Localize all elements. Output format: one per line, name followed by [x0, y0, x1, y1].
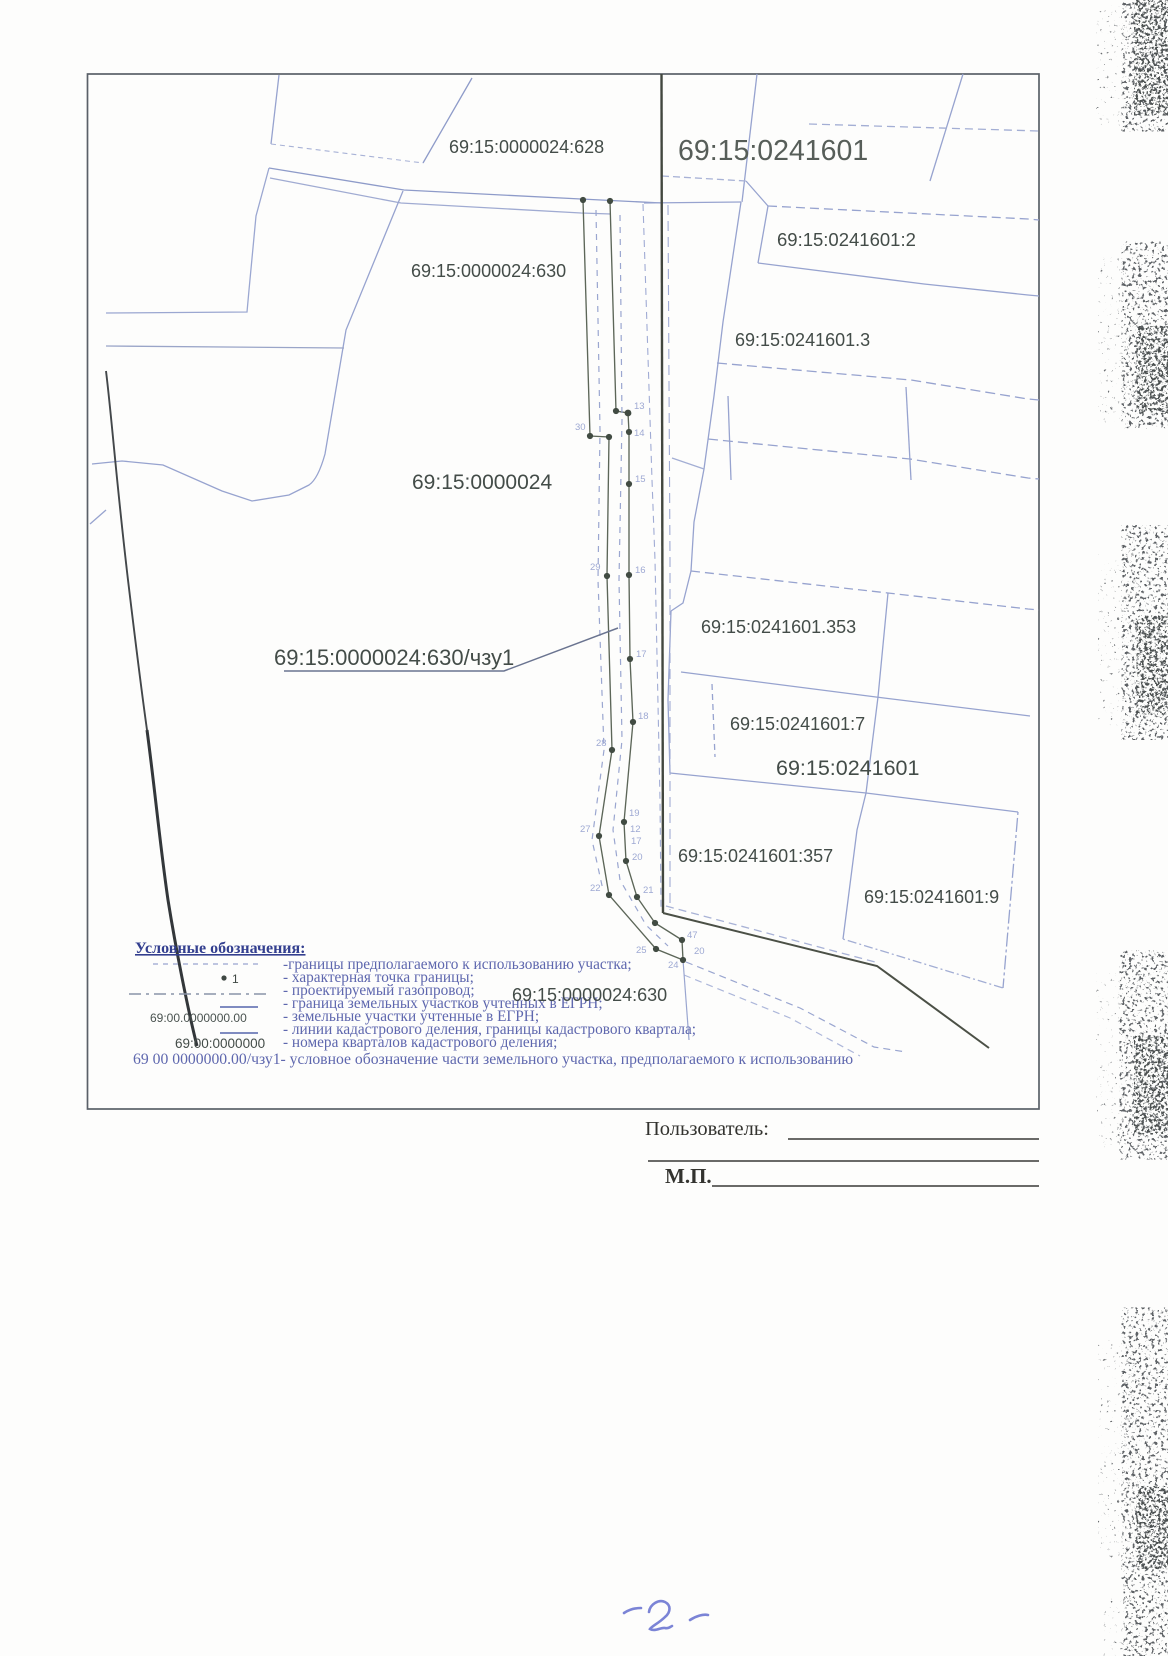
svg-text:20: 20: [632, 852, 643, 863]
svg-text:69:15:0241601:2: 69:15:0241601:2: [777, 229, 916, 250]
svg-text:69:00:0000000: 69:00:0000000: [175, 1036, 265, 1051]
svg-text:24: 24: [668, 960, 679, 971]
svg-text:17: 17: [636, 649, 647, 660]
svg-text:69:15:0000024:630: 69:15:0000024:630: [411, 261, 566, 281]
svg-text:69:15:0000024: 69:15:0000024: [412, 471, 552, 494]
svg-text:69:15:0241601:7: 69:15:0241601:7: [730, 714, 865, 734]
svg-text:- номера кварталов кадастровог: - номера кварталов кадастрового деления;: [283, 1034, 557, 1051]
svg-text:19: 19: [629, 808, 640, 819]
svg-text:Условные обозначения:: Условные обозначения:: [135, 940, 306, 957]
svg-text:29: 29: [590, 562, 601, 573]
svg-text:25: 25: [636, 945, 647, 956]
svg-text:47: 47: [687, 930, 698, 941]
svg-text:69:15:0241601: 69:15:0241601: [776, 756, 919, 780]
svg-text:20: 20: [694, 946, 705, 957]
svg-text:69:15:0241601:357: 69:15:0241601:357: [678, 846, 833, 866]
svg-text:22: 22: [590, 883, 601, 894]
svg-text:69:00.0000000.00: 69:00.0000000.00: [150, 1011, 247, 1025]
svg-text:14: 14: [634, 428, 645, 439]
svg-text:28: 28: [596, 738, 607, 749]
svg-text:13: 13: [634, 401, 645, 412]
svg-text:М.П.: М.П.: [665, 1164, 712, 1188]
svg-text:1: 1: [232, 972, 239, 986]
svg-text:69 00 0000000.00/чзу1- условно: 69 00 0000000.00/чзу1- условное обозначе…: [133, 1051, 853, 1068]
svg-text:15: 15: [635, 474, 646, 485]
svg-text:30: 30: [575, 422, 586, 433]
svg-text:17: 17: [631, 836, 642, 847]
svg-text:18: 18: [638, 711, 649, 722]
svg-text:69:15:0241601: 69:15:0241601: [678, 135, 868, 167]
svg-text:69:15:0000024:630/чзу1: 69:15:0000024:630/чзу1: [274, 645, 514, 670]
svg-text:Пользователь:: Пользователь:: [645, 1118, 769, 1140]
svg-text:69:15:0241601.353: 69:15:0241601.353: [701, 617, 856, 637]
svg-text:21: 21: [643, 885, 654, 896]
svg-text:69:15:0000024:628: 69:15:0000024:628: [449, 137, 604, 157]
svg-text:27: 27: [580, 824, 591, 835]
svg-text:12: 12: [630, 824, 641, 835]
svg-text:16: 16: [635, 565, 646, 576]
svg-text:69:15:0241601:9: 69:15:0241601:9: [864, 887, 999, 907]
svg-text:69:15:0000024:630: 69:15:0000024:630: [512, 985, 667, 1005]
svg-text:69:15:0241601.3: 69:15:0241601.3: [735, 330, 870, 350]
